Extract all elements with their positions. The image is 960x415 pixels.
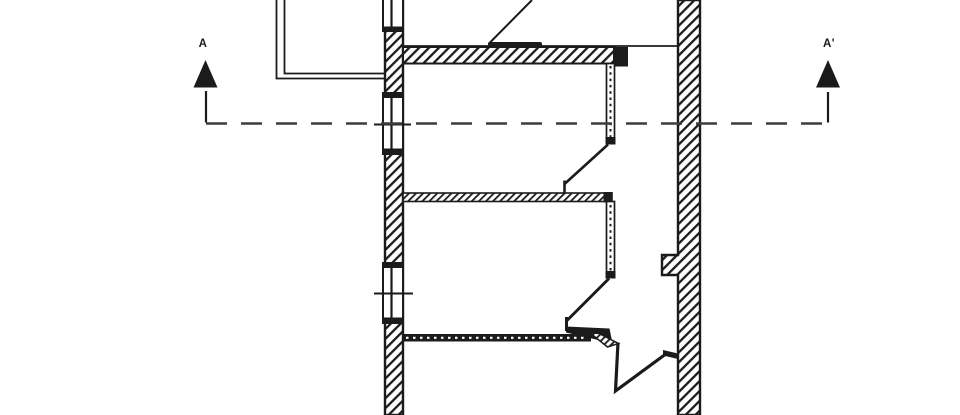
- middle-interior-wall: [403, 192, 613, 203]
- window-top: [383, 0, 403, 32]
- partition-end-cap: [606, 271, 616, 279]
- left-wall-hatched-body: [385, 0, 403, 415]
- partition-upper: [606, 64, 616, 145]
- door-threshold: [488, 42, 542, 48]
- window-frame: [383, 0, 403, 31]
- section-label-a-prime: A': [823, 38, 835, 50]
- plan-drawing: A A': [0, 0, 960, 415]
- window-head-cap: [383, 93, 403, 98]
- wall-hatched-band: [403, 47, 615, 64]
- partition-lower: [606, 202, 616, 279]
- window-sill-cap: [383, 318, 403, 324]
- section-label-a: A: [199, 38, 208, 50]
- plan-sheet: A A': [0, 0, 960, 415]
- wall-hatched-band: [403, 193, 612, 202]
- window-sill-cap: [383, 27, 403, 33]
- partition-end-cap: [606, 137, 616, 145]
- window-sill-cap: [383, 149, 403, 155]
- window-head-cap: [383, 263, 403, 268]
